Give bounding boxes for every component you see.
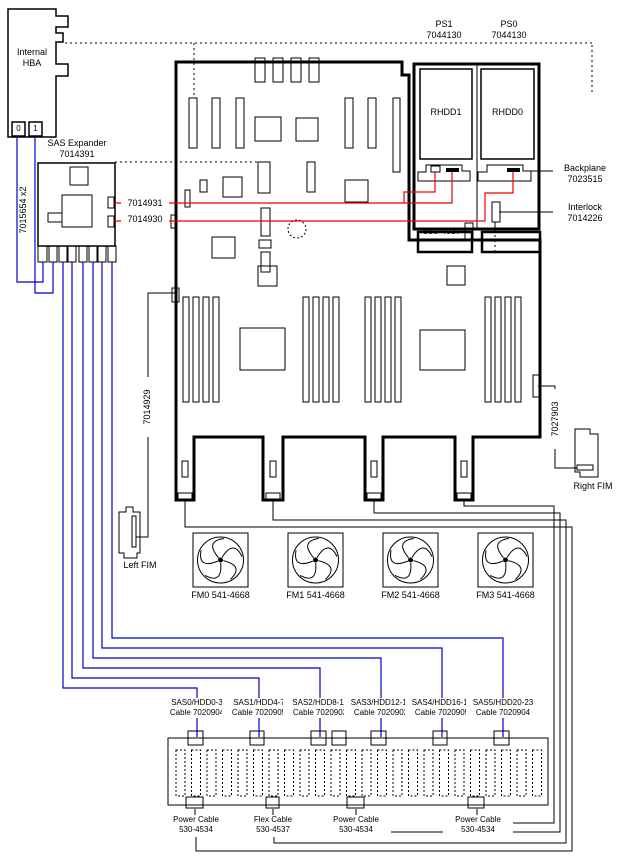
ps0-label: PS0 7044130 bbox=[479, 19, 539, 41]
power-cable3-part: 530-4534 bbox=[443, 825, 513, 835]
black-routes bbox=[136, 171, 577, 851]
power-cable0-part: 530-4534 bbox=[161, 825, 231, 835]
disk-backplane bbox=[168, 731, 548, 808]
internal-hba-label: Internal HBA bbox=[8, 47, 56, 69]
sas-expander-label: SAS Expander 7014391 bbox=[36, 138, 118, 160]
right-fim bbox=[575, 429, 598, 477]
sas-expander-board bbox=[38, 163, 116, 262]
fan0-label: FM0 541-4668 bbox=[180, 590, 261, 601]
red-cables bbox=[114, 172, 513, 221]
backplane-strip-right bbox=[478, 165, 531, 181]
backplane-strip-left bbox=[418, 165, 470, 181]
cable-7015654-label: 7015654 x2 bbox=[18, 180, 30, 240]
service-diagram: Internal HBA 0 1 SAS Expander 7014391 70… bbox=[0, 0, 627, 864]
hba-port0-label: 0 bbox=[12, 123, 25, 134]
fan-icon bbox=[291, 536, 338, 583]
cpu1-chip bbox=[420, 330, 465, 370]
motherboard-components bbox=[171, 58, 540, 499]
fan-icon bbox=[196, 536, 243, 583]
power-cable3-name: Power Cable bbox=[443, 815, 513, 825]
power-cable0-name: Power Cable bbox=[161, 815, 231, 825]
power-cable3-label: Power Cable530-4534 bbox=[443, 815, 513, 835]
power-cable0-label: Power Cable530-4534 bbox=[161, 815, 231, 835]
connector-530-4037-label: 530-4037 bbox=[353, 226, 461, 237]
fan-icon bbox=[481, 536, 528, 583]
flex-cable-part: 530-4537 bbox=[238, 825, 308, 835]
fan1-label: FM1 541-4668 bbox=[275, 590, 356, 601]
flex-cable-name: Flex Cable bbox=[238, 815, 308, 825]
flex-cable-label: Flex Cable530-4537 bbox=[238, 815, 308, 835]
cable-7014929-label: 7014929 bbox=[142, 377, 154, 437]
right-fim-label: Right FIM bbox=[561, 481, 625, 492]
left-fim-label: Left FIM bbox=[108, 560, 172, 571]
cable-7014931-label: 7014931 bbox=[121, 198, 169, 209]
ps0-latch bbox=[482, 232, 540, 252]
ps1-label: PS1 7044130 bbox=[414, 19, 474, 41]
sas-cable5-part: Cable 7020904 bbox=[466, 708, 540, 718]
interlock-switch bbox=[492, 202, 500, 222]
left-fim bbox=[119, 507, 140, 558]
fan3-label: FM3 541-4668 bbox=[465, 590, 546, 601]
backplane-label: Backplane 7023515 bbox=[554, 163, 616, 185]
battery-circle bbox=[288, 220, 306, 238]
cable-7014930-label: 7014930 bbox=[121, 214, 169, 225]
drive-slots bbox=[176, 750, 542, 796]
power-cable2-label: Power Cable530-4534 bbox=[321, 815, 391, 835]
interlock-label: Interlock 7014226 bbox=[554, 202, 616, 224]
diagram-canvas bbox=[0, 0, 627, 864]
sas-cable5-label: SAS5/HDD20-23Cable 7020904 bbox=[466, 698, 540, 718]
hba-port1-label: 1 bbox=[29, 123, 42, 134]
rhdd0-label: RHDD0 bbox=[481, 107, 534, 118]
fan2-label: FM2 541-4668 bbox=[370, 590, 451, 601]
cable-7027903-label: 7027903 bbox=[550, 389, 562, 449]
power-cable2-name: Power Cable bbox=[321, 815, 391, 825]
motherboard-outline bbox=[176, 62, 540, 500]
internal-hba-card bbox=[8, 9, 68, 137]
cpu0-chip bbox=[240, 328, 285, 370]
psu-rhdd-housing bbox=[414, 64, 540, 252]
power-cable2-part: 530-4534 bbox=[321, 825, 391, 835]
expander-bottom-connectors bbox=[38, 246, 116, 262]
fan-icon bbox=[386, 536, 433, 583]
sas-cable5-id: SAS5/HDD20-23 bbox=[466, 698, 540, 708]
rhdd1-label: RHDD1 bbox=[420, 107, 472, 118]
fan-modules bbox=[193, 533, 533, 587]
